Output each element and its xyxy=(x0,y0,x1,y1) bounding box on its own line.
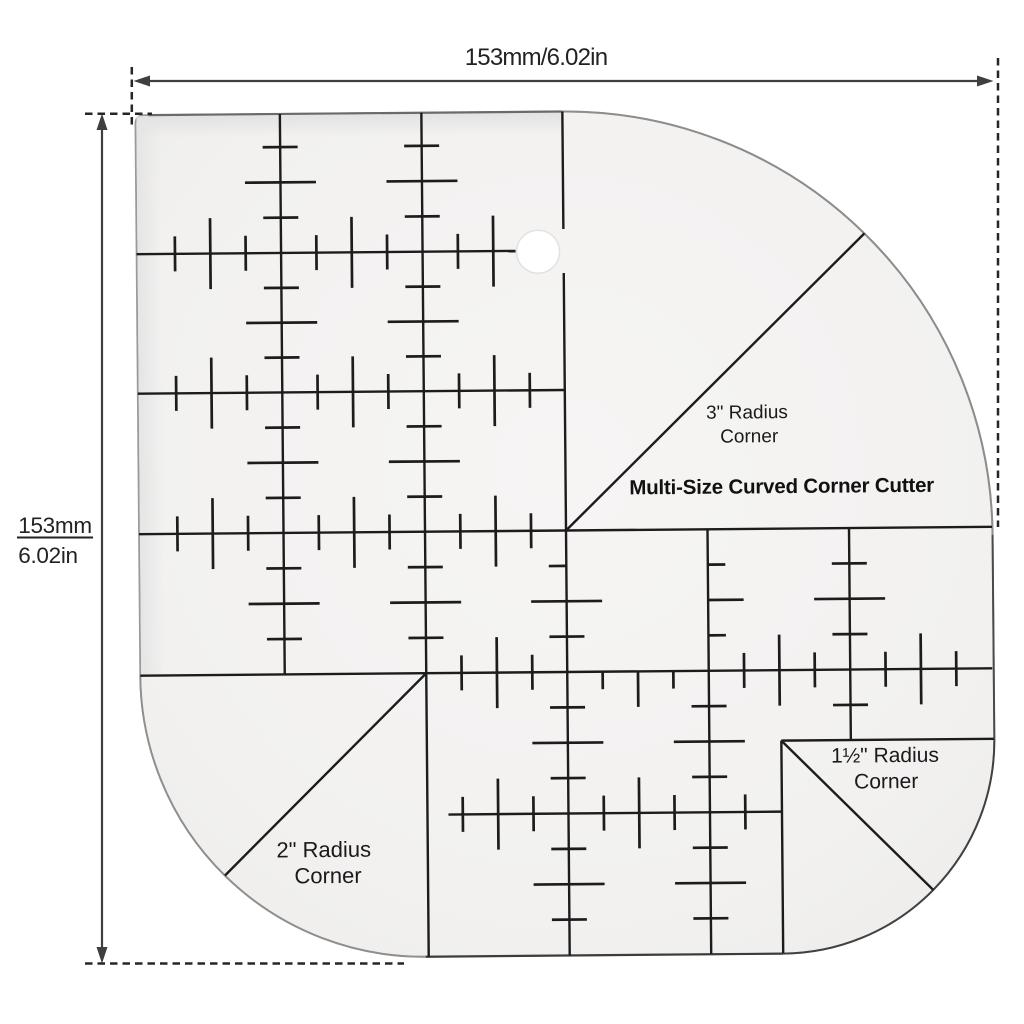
svg-text:3" Radius: 3" Radius xyxy=(706,402,788,424)
svg-text:Corner: Corner xyxy=(294,863,361,889)
svg-text:Corner: Corner xyxy=(854,770,918,794)
svg-text:2" Radius: 2" Radius xyxy=(276,837,371,863)
svg-text:153mm: 153mm xyxy=(18,513,92,538)
svg-text:Multi-Size Curved Corner Cutte: Multi-Size Curved Corner Cutter xyxy=(629,474,934,500)
svg-text:6.02in: 6.02in xyxy=(18,543,78,568)
svg-text:153mm/6.02in: 153mm/6.02in xyxy=(465,44,608,71)
svg-text:Corner: Corner xyxy=(720,426,779,448)
svg-text:1½" Radius: 1½" Radius xyxy=(831,744,939,768)
